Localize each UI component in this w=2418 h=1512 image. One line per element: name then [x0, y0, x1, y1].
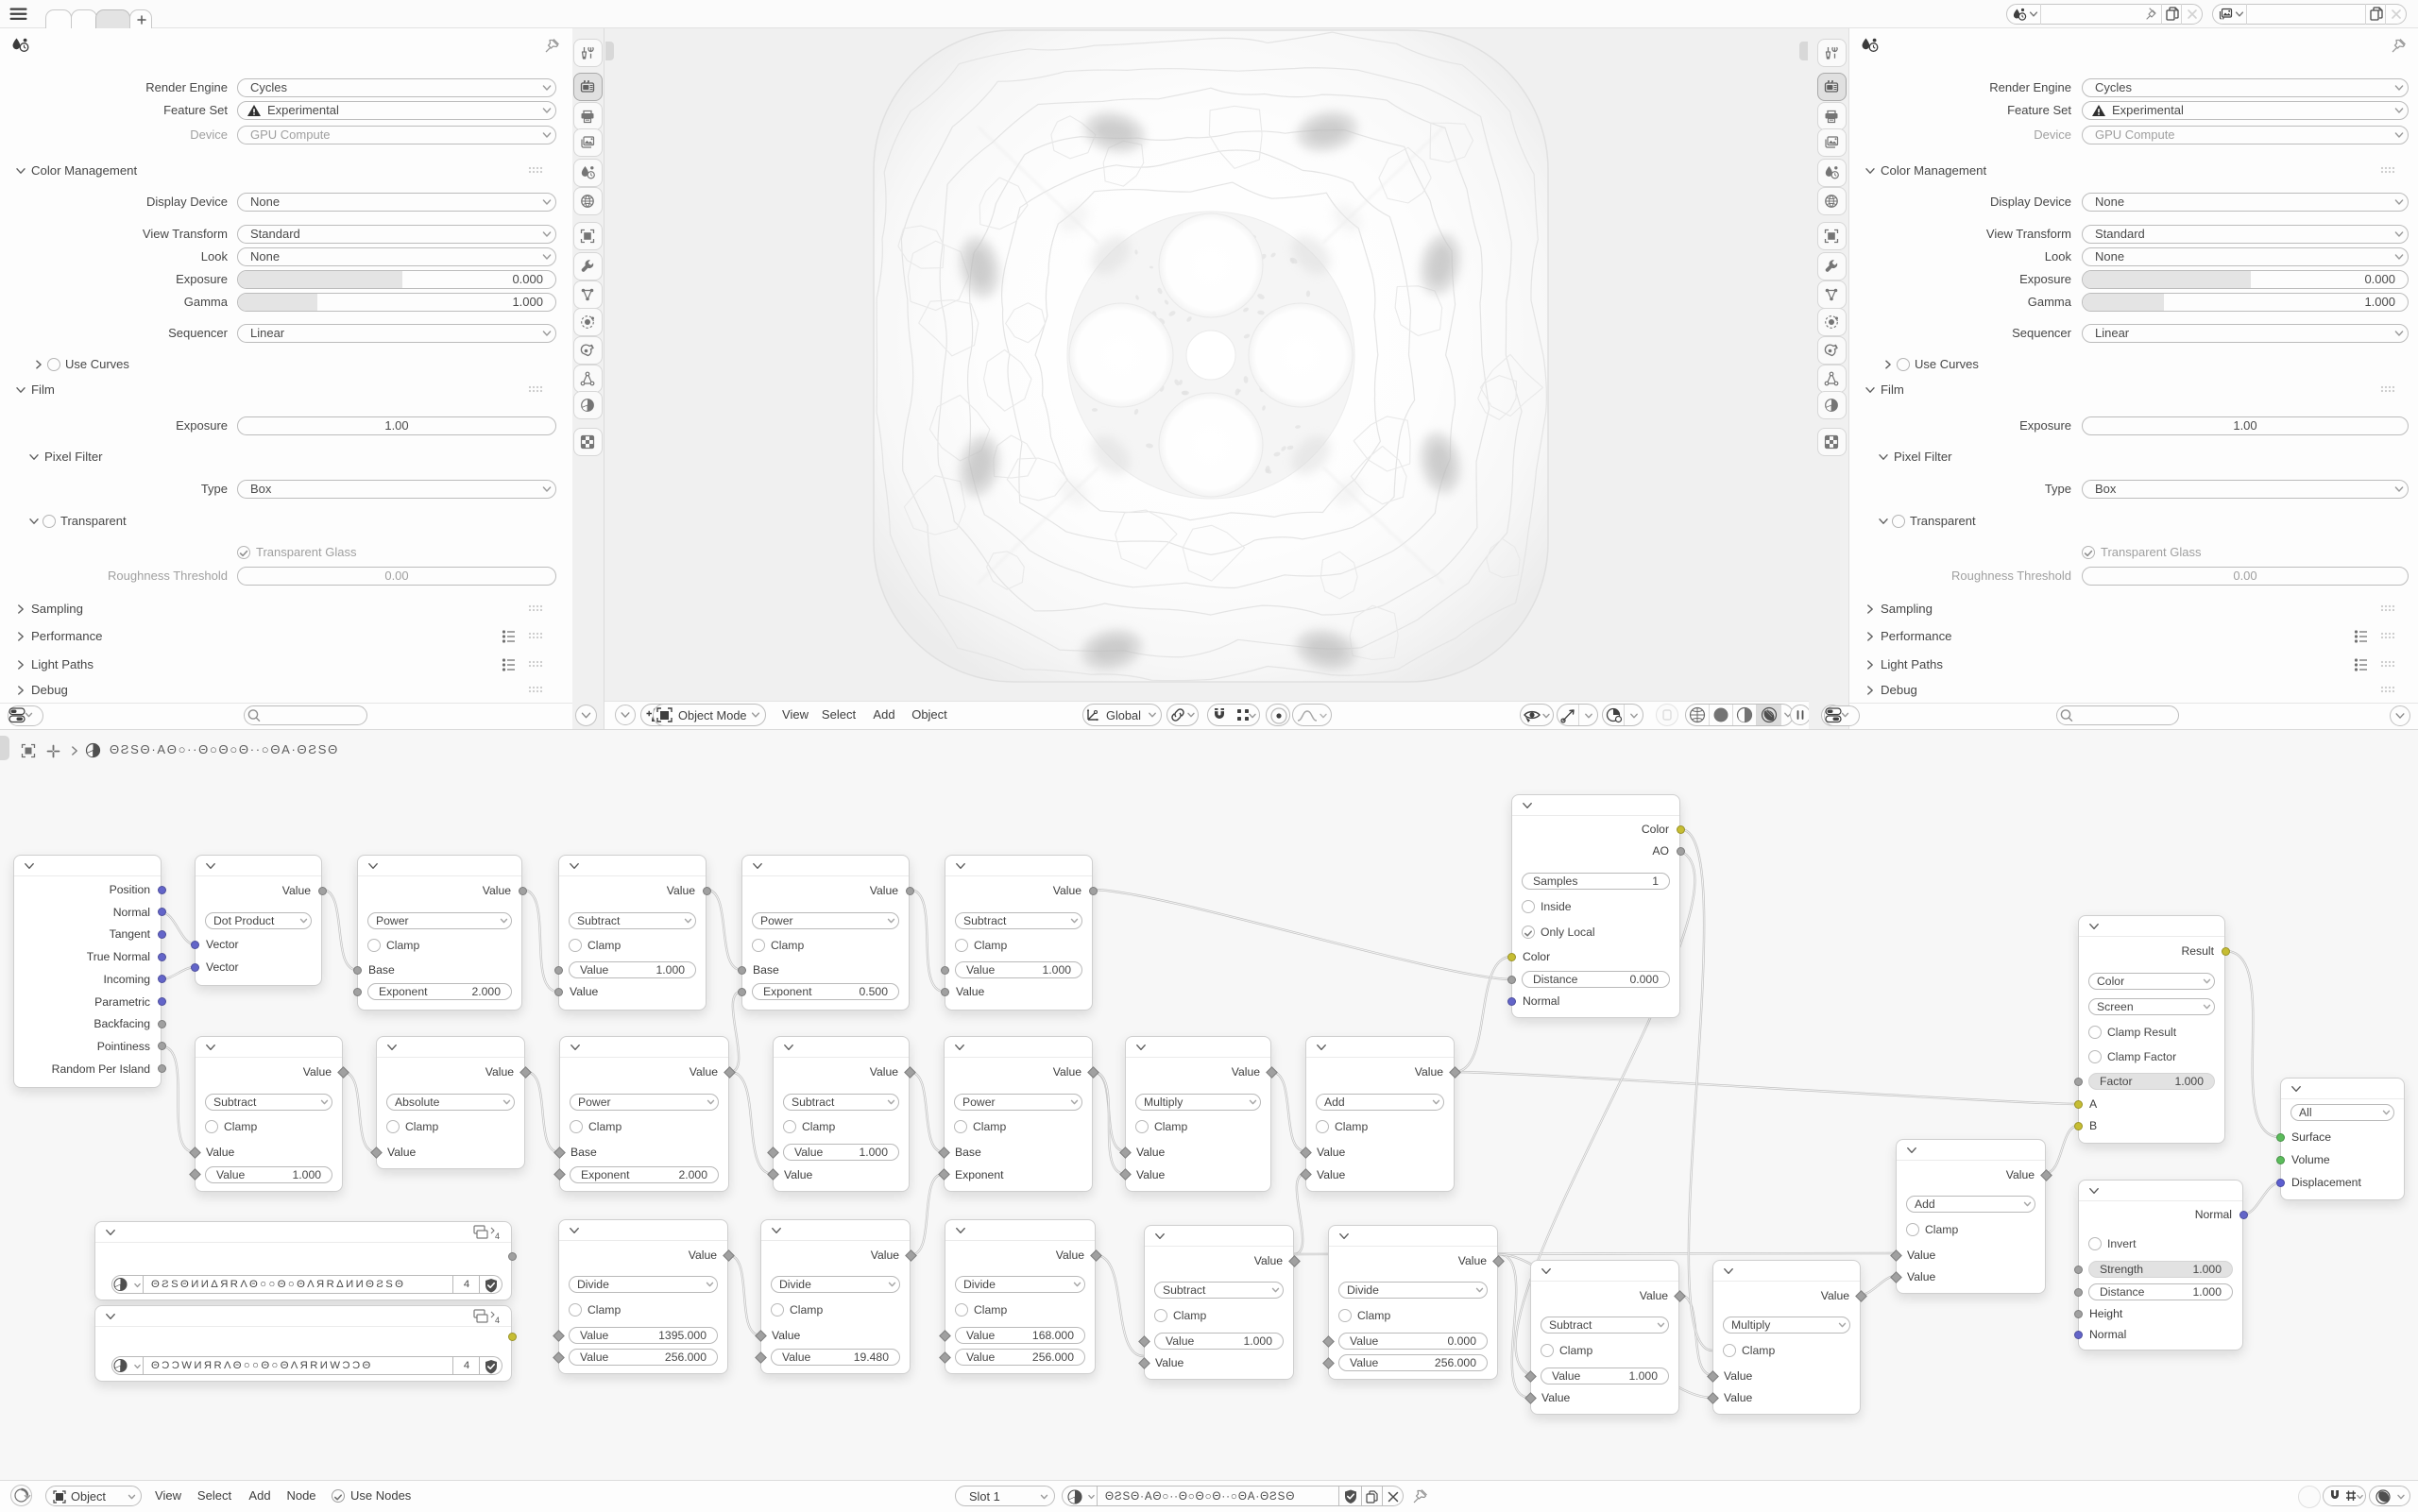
svg-text:4: 4	[495, 1316, 500, 1325]
svg-text:4: 4	[495, 1232, 500, 1241]
